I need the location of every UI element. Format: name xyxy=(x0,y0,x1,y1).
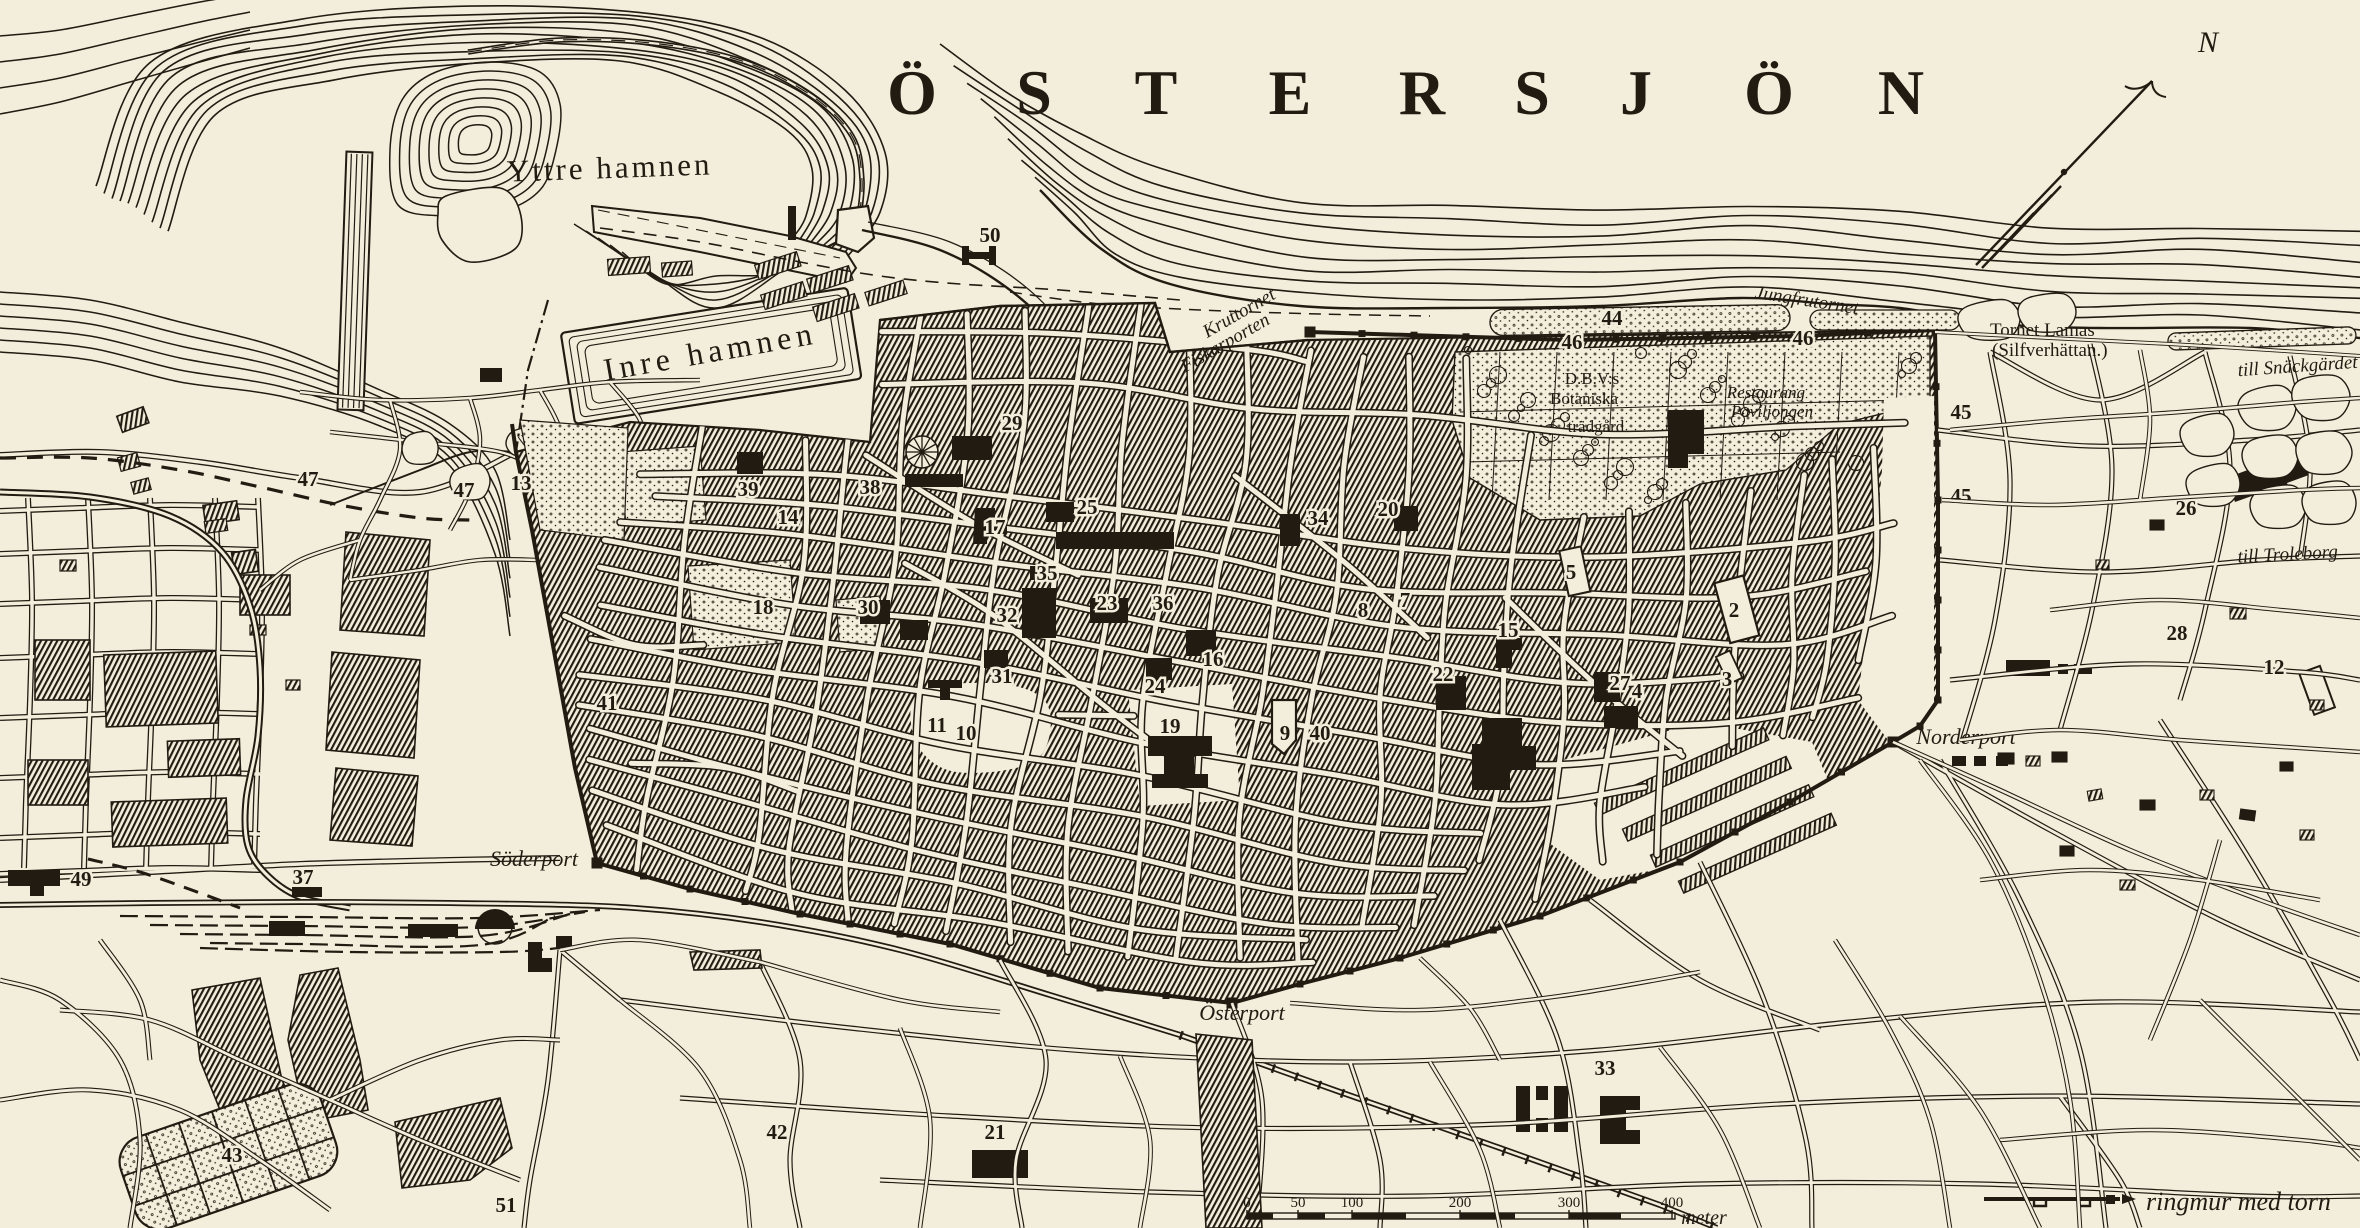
svg-text:44: 44 xyxy=(1602,306,1624,330)
svg-text:Paviljongen: Paviljongen xyxy=(1730,402,1813,421)
svg-text:30: 30 xyxy=(858,595,879,619)
svg-text:Yttre hamnen: Yttre hamnen xyxy=(506,146,713,188)
svg-text:43: 43 xyxy=(222,1143,243,1167)
svg-text:11: 11 xyxy=(927,713,947,737)
svg-text:39: 39 xyxy=(738,477,759,501)
svg-text:200: 200 xyxy=(1449,1195,1472,1211)
svg-text:400: 400 xyxy=(1661,1195,1684,1211)
svg-text:14: 14 xyxy=(778,505,800,529)
svg-text:300: 300 xyxy=(1558,1195,1581,1211)
svg-text:45: 45 xyxy=(1951,400,1972,424)
svg-text:46: 46 xyxy=(1793,326,1814,350)
svg-text:47: 47 xyxy=(298,467,319,491)
svg-text:50: 50 xyxy=(1291,1195,1306,1211)
svg-text:40: 40 xyxy=(1310,721,1331,745)
svg-text:10: 10 xyxy=(956,721,977,745)
svg-text:31: 31 xyxy=(992,664,1013,688)
svg-text:51: 51 xyxy=(496,1193,517,1217)
svg-text:Österport: Österport xyxy=(1199,1000,1285,1025)
svg-text:Ö: Ö xyxy=(887,57,937,128)
svg-text:17: 17 xyxy=(985,515,1006,539)
svg-text:49: 49 xyxy=(71,867,92,891)
svg-text:38: 38 xyxy=(860,475,881,499)
svg-text:Ö: Ö xyxy=(1744,57,1794,128)
svg-text:2: 2 xyxy=(1729,598,1740,622)
svg-text:22: 22 xyxy=(1433,662,1454,686)
svg-text:meter: meter xyxy=(1681,1207,1727,1228)
svg-text:41: 41 xyxy=(597,691,618,715)
svg-text:S: S xyxy=(1016,57,1052,128)
svg-text:45: 45 xyxy=(1951,484,1972,508)
svg-text:50: 50 xyxy=(980,223,1001,247)
svg-text:E: E xyxy=(1269,57,1312,128)
svg-text:100: 100 xyxy=(1341,1195,1364,1211)
svg-text:36: 36 xyxy=(1153,591,1174,615)
svg-text:29: 29 xyxy=(1002,411,1023,435)
svg-text:Restaurang: Restaurang xyxy=(1726,383,1805,402)
svg-text:N: N xyxy=(2197,26,2220,59)
svg-text:23: 23 xyxy=(1097,591,1118,615)
svg-text:28: 28 xyxy=(2167,621,2188,645)
svg-text:9: 9 xyxy=(1280,721,1291,745)
svg-text:33: 33 xyxy=(1595,1056,1616,1080)
svg-text:7: 7 xyxy=(1400,588,1411,612)
svg-text:13: 13 xyxy=(511,471,532,495)
svg-text:47: 47 xyxy=(454,478,475,502)
svg-text:S: S xyxy=(1514,57,1550,128)
svg-text:ringmur med torn: ringmur med torn xyxy=(2146,1187,2331,1216)
svg-text:3: 3 xyxy=(1722,667,1733,691)
svg-text:35: 35 xyxy=(1037,561,1058,585)
svg-text:N: N xyxy=(1878,57,1924,128)
svg-text:21: 21 xyxy=(985,1120,1006,1144)
svg-text:T: T xyxy=(1135,57,1178,128)
svg-text:trädgård: trädgård xyxy=(1568,417,1625,436)
svg-text:12: 12 xyxy=(2264,655,2285,679)
svg-text:42: 42 xyxy=(767,1120,788,1144)
svg-text:D.B.V:s: D.B.V:s xyxy=(1565,369,1619,388)
svg-text:J: J xyxy=(1620,57,1652,128)
svg-text:34: 34 xyxy=(1308,506,1330,530)
svg-text:5: 5 xyxy=(1566,560,1577,584)
svg-text:0: 0 xyxy=(1243,1195,1251,1211)
svg-text:(Silfverhättan.): (Silfverhättan.) xyxy=(1992,340,2108,361)
svg-text:46: 46 xyxy=(1562,330,1583,354)
svg-text:8: 8 xyxy=(1358,598,1369,622)
svg-text:25: 25 xyxy=(1077,495,1098,519)
svg-text:37: 37 xyxy=(293,865,314,889)
svg-text:Söderport: Söderport xyxy=(490,846,579,871)
svg-text:R: R xyxy=(1399,57,1446,128)
svg-text:19: 19 xyxy=(1160,714,1181,738)
svg-text:15: 15 xyxy=(1498,618,1519,642)
svg-text:24: 24 xyxy=(1145,674,1167,698)
svg-text:16: 16 xyxy=(1203,647,1224,671)
svg-text:Botaniska: Botaniska xyxy=(1550,389,1618,408)
svg-text:18: 18 xyxy=(753,595,774,619)
svg-text:4: 4 xyxy=(1632,679,1643,703)
svg-text:27: 27 xyxy=(1610,671,1631,695)
svg-text:32: 32 xyxy=(997,603,1018,627)
svg-text:20: 20 xyxy=(1378,497,1399,521)
